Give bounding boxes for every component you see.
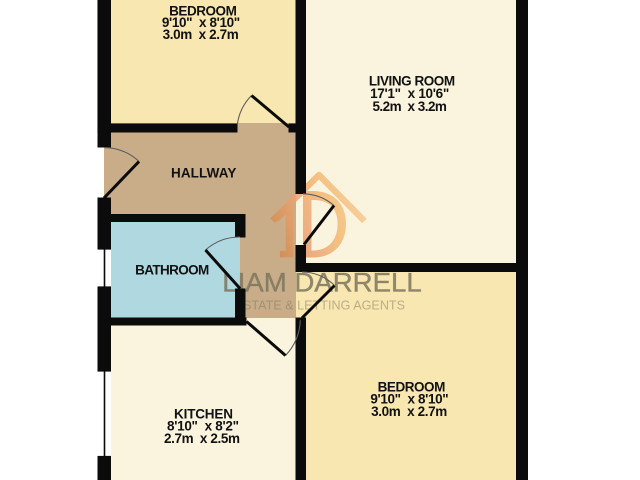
svg-text:3.0m x 2.7m: 3.0m x 2.7m [371,404,447,419]
svg-text:5.2m x 3.2m: 5.2m x 3.2m [372,99,447,114]
svg-text:3.0m x 2.7m: 3.0m x 2.7m [163,27,239,42]
svg-text:HALLWAY: HALLWAY [171,166,237,181]
svg-text:BATHROOM: BATHROOM [135,262,209,277]
svg-text:2.7m x 2.5m: 2.7m x 2.5m [164,431,240,446]
